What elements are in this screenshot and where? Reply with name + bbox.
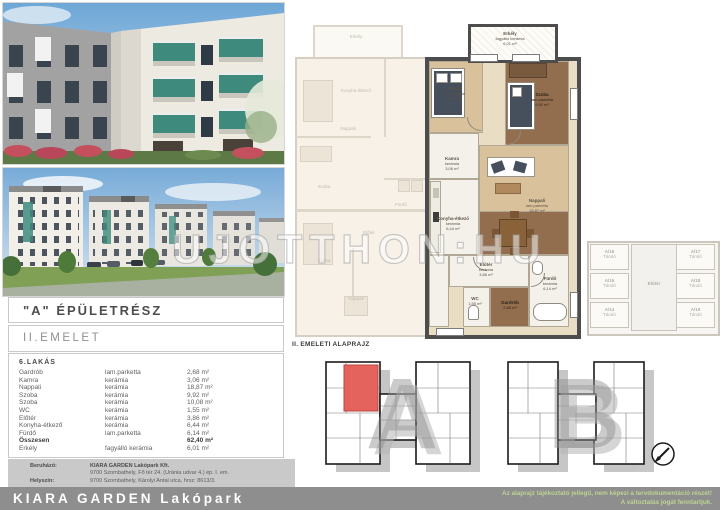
investor-label: Beruházó: [30,463,57,469]
room-area-cell: 1,55 m² [187,407,267,415]
location-label: Helyszín: [30,478,54,484]
table-row: Erkély fagyálló kerámia 6,01 m² [9,445,283,453]
room-name-cell: Erkély [19,445,105,453]
room-name-cell: Szoba [19,392,105,400]
sofa-symbol [487,157,535,177]
neighbor-room-label: Szoba [306,184,342,189]
disclaimer-text: Az alaprajz tájékoztató jellegű, nem kép… [502,490,712,507]
brand-title: KIARA GARDEN Lakópark [13,491,244,506]
neighbor-room-label: Konyha-étkező [330,88,382,93]
investor-address: 9700 Szombathely, Fő tér 24. (Uránia udv… [90,470,229,476]
room-name-cell: Konyha-étkező [19,422,105,430]
apartment-room-table: 6.LAKÁS Gardrób lam.parketta 2,68 m² Kam… [8,353,284,458]
room-name-cell: Összesen [19,437,105,445]
room-label-erkely: Erkély fagyálló kerámia 6,01 m² [472,31,548,46]
room-material-cell: kerámia [105,407,187,415]
floor-heading: II.EMELET [8,325,284,352]
overview-plan-building-a: A A [306,358,496,485]
window-symbol [570,292,578,318]
ujotthon-watermark: UJOTTHON:HU [172,226,712,273]
room-name-cell: Szoba [19,399,105,407]
building-a-outline: A A [306,358,496,480]
location-address: 9700 Szombathely, Károlyi Antal utca, hr… [90,478,216,484]
room-material-cell [105,437,187,445]
neighbor-room-label: Nappali [326,126,370,131]
room-area-cell: 2,68 m² [187,369,267,377]
overview-plan-label: II. EMELETI ALAPRAJZ [292,341,370,348]
window-symbol [512,54,540,62]
north-arrow-icon [650,441,676,472]
room-label-szoba1: Szoba lam.parketta 10,08 m² [432,86,476,101]
room-area-cell: 62,40 m² [187,437,267,445]
neighbor-wall [295,136,371,138]
toilet-symbol [468,305,479,320]
neighbor-wall [295,209,425,212]
table-row: Nappali kerámia 18,87 m² [9,384,283,392]
neighbor-room-label: Fürdő [384,202,418,207]
storage-unit: A/14 Tároló [590,302,629,328]
letter-b: B [548,358,620,470]
room-label-wc: WC 1,55 m² [462,296,488,306]
neighbor-fixture-symbol [411,180,423,192]
storage-unit: A/18 Tároló [676,273,715,299]
coffee-table-symbol [495,183,521,194]
window-symbol [570,88,578,120]
room-material-cell: kerámia [105,422,187,430]
neighbor-sofa-symbol [300,146,332,162]
footer-bar: KIARA GARDEN Lakópark Az alaprajz tájéko… [0,487,720,510]
room-name-cell: Előtér [19,415,105,423]
room-label-nappali: Nappali lam.parketta 18,87 m² [512,198,562,213]
room-material-cell: kerámia [105,377,187,385]
room-material-cell: kerámia [105,392,187,400]
overview-plan-building-b: B B [496,358,671,485]
room-area-cell: 18,87 m² [187,384,267,392]
room-name-cell: Gardrób [19,369,105,377]
neighbor-room-label: Nappali [334,296,378,301]
table-row: Összesen 62,40 m² [9,437,283,445]
storage-unit: A/19 Tároló [676,302,715,328]
room-label-szoba2: Szoba lam.parketta 9,92 m² [520,92,564,107]
table-row: WC kerámia 1,55 m² [9,407,283,415]
apartment-number-title: 6.LAKÁS [9,354,283,369]
room-label-gardrob: Gardrób 2,68 m² [490,300,530,310]
highlighted-apartment-marker [344,365,378,411]
room-material-cell: kerámia [105,384,187,392]
table-row: Kamra kerámia 3,06 m² [9,377,283,385]
building-section-label: "A" ÉPÜLETRÉSZ [9,298,283,318]
window-symbol [436,328,464,336]
table-row: Fürdő lam.parketta 6,14 m² [9,430,283,438]
room-area-cell: 9,92 m² [187,392,267,400]
bathtub-symbol [533,303,567,321]
table-row: Gardrób lam.parketta 2,68 m² [9,369,283,377]
facade-render-image [3,3,284,164]
room-area-cell: 6,44 m² [187,422,267,430]
room-area-cell: 3,86 m² [187,415,267,423]
room-table-rows: Gardrób lam.parketta 2,68 m² Kamra kerám… [9,369,283,453]
building-section-heading: "A" ÉPÜLETRÉSZ [8,297,284,323]
room-material-cell: lam.parketta [105,369,187,377]
room-name-cell: Kamra [19,377,105,385]
table-row: Konyha-étkező kerámia 6,44 m² [9,422,283,430]
room-material-cell: lam.parketta [105,430,187,438]
room-material-cell: fagyálló kerámia [105,445,187,453]
window-symbol [470,54,498,62]
neighbor-room-label: Erkély [330,34,382,39]
neighbor-fixture-symbol [398,180,410,192]
room-area-cell: 3,06 m² [187,377,267,385]
wardrobe-symbol [509,63,547,78]
building-b-outline: B B [496,358,671,480]
room-area-cell: 6,14 m² [187,430,267,438]
room-label-furdo: Fürdő kerámia 6,14 m² [530,276,570,291]
room-name-cell: WC [19,407,105,415]
table-row: Szoba kerámia 9,92 m² [9,392,283,400]
neighbor-balcony [313,25,403,61]
table-row: Előtér kerámia 3,86 m² [9,415,283,423]
neighbor-wall [384,59,386,137]
floor-label: II.EMELET [9,326,283,344]
neighbor-bed-symbol [303,80,333,122]
room-area-cell: 6,01 m² [187,445,267,453]
storage-unit: A/15 Tároló [590,273,629,299]
developer-info-strip: Beruházó: KIARA GARDEN Lakópark Kft. 970… [8,459,295,487]
room-material-cell: kerámia [105,399,187,407]
room-material-cell: kerámia [105,415,187,423]
table-row: Szoba kerámia 10,08 m² [9,399,283,407]
room-area-cell: 10,08 m² [187,399,267,407]
brochure-page: "A" ÉPÜLETRÉSZ II.EMELET 6.LAKÁS Gardrób… [0,0,720,510]
investor-name: KIARA GARDEN Lakópark Kft. [90,463,169,469]
building-facade-photo [2,2,285,165]
room-label-kamra: Kamra kerámia 3,06 m² [432,156,472,171]
room-name-cell: Nappali [19,384,105,392]
